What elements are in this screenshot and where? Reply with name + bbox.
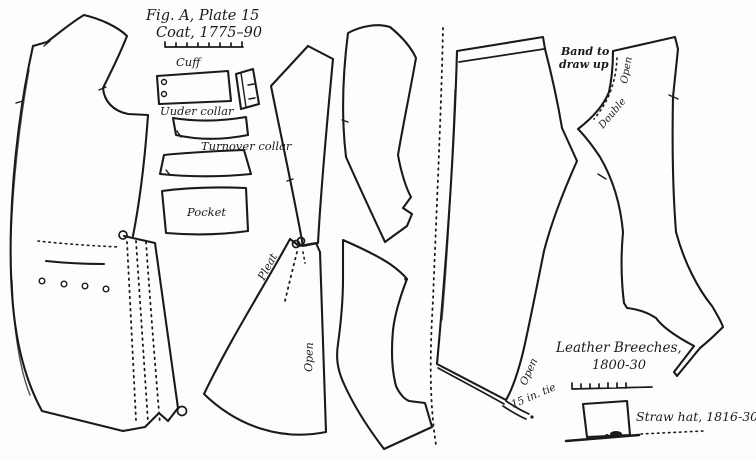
cuff-button-hole [162, 92, 167, 97]
coat-scale-ruler [165, 42, 243, 47]
pattern-plate: Fig. A, Plate 15 Coat, 1775–90 Cuff Uude… [0, 0, 756, 459]
cuff-facing-outline [236, 69, 259, 109]
pocket-slit-line [46, 261, 104, 264]
hat-brim-knot-dot [605, 434, 609, 438]
button-hole [39, 278, 45, 284]
cuff-outline [157, 71, 231, 104]
side-body-piece [271, 46, 333, 263]
breeches-back-outline [578, 37, 723, 376]
breeches-back-piece: Band to draw up Open Double [559, 37, 723, 376]
pattern-diagram: Fig. A, Plate 15 Coat, 1775–90 Cuff Uude… [0, 0, 756, 459]
coat-body-outline-left [11, 46, 123, 431]
breeches-scale-ruler [572, 383, 652, 389]
under-sleeve-piece [337, 240, 432, 449]
cuff-button-hole [162, 80, 167, 85]
hat-scale-dotted [641, 431, 703, 434]
figure-title-line2: Coat, 1775–90 [156, 25, 262, 41]
breeches-back-notch-left [598, 174, 606, 179]
pocket-placement-dotted-line [38, 241, 120, 247]
side-body-notch [287, 179, 293, 181]
skirt-pleat-dotted-line [285, 252, 297, 301]
coat-body-piece [11, 15, 187, 431]
turnover-collar-outline [160, 150, 251, 176]
under-sleeve-outline [337, 240, 432, 449]
band-label-line1: Band to [560, 45, 609, 58]
cuff-label: Cuff [176, 55, 202, 69]
skirt-open-label: Open [302, 342, 316, 372]
breeches-back-open-label: Open [619, 56, 635, 84]
pleat-bottom-eyelet [178, 407, 187, 416]
hat-brim-knot [610, 431, 622, 437]
pleat-label: Pleat [255, 251, 281, 284]
pocket-piece: Pocket [162, 187, 248, 234]
figure-title-block: Fig. A, Plate 15 Coat, 1775–90 [145, 8, 262, 47]
pleat-top-eyelet [119, 231, 127, 239]
breeches-title-block: Leather Breeches, 1800-30 [555, 340, 682, 389]
figure-title-line1: Fig. A, Plate 15 [145, 8, 259, 24]
cuff-facing-fold-line [241, 73, 246, 107]
breeches-front-band-line [459, 49, 544, 62]
coat-body-outline-top [33, 15, 148, 236]
pocket-label: Pocket [186, 205, 226, 219]
under-collar-label: Uuder collar [160, 104, 235, 118]
under-collar-piece: Uuder collar [160, 104, 248, 139]
upper-sleeve-piece [342, 25, 416, 242]
coat-skirt-piece: Pleat Open [204, 239, 326, 435]
cuff-facing-piece [236, 69, 259, 109]
button-hole [103, 286, 109, 292]
upper-sleeve-outline [343, 25, 416, 242]
breeches-front-hem-line [438, 368, 504, 404]
side-body-dotted-mark [303, 252, 305, 263]
hat-crown-outline [583, 401, 630, 437]
cuff-facing-marks [248, 84, 255, 99]
button-hole [61, 281, 67, 287]
breeches-title-line2: 1800-30 [592, 358, 646, 373]
pleat-fold-dotted-1 [127, 242, 136, 420]
cuff-piece: Cuff [157, 55, 231, 104]
breeches-title-line1: Leather Breeches, [555, 340, 682, 356]
double-label: Double [596, 96, 628, 131]
knee-tie-end-dot [530, 415, 533, 418]
under-sleeve-mark [404, 277, 408, 281]
tie-length-label: 15 in. tie [509, 381, 557, 411]
band-label-line2: draw up [559, 58, 609, 71]
under-collar-outline [173, 117, 248, 139]
turnover-collar-piece: Turnover collar [160, 139, 293, 176]
straw-hat-label: Straw hat, 1816-30 [636, 409, 756, 424]
pleat-fold-dotted-2 [136, 241, 148, 422]
straw-hat-piece: Straw hat, 1816-30 [566, 401, 756, 441]
breeches-front-piece: Open 15 in. tie [437, 37, 577, 419]
button-hole [82, 283, 88, 289]
section-divider-dotted-line [431, 28, 443, 445]
